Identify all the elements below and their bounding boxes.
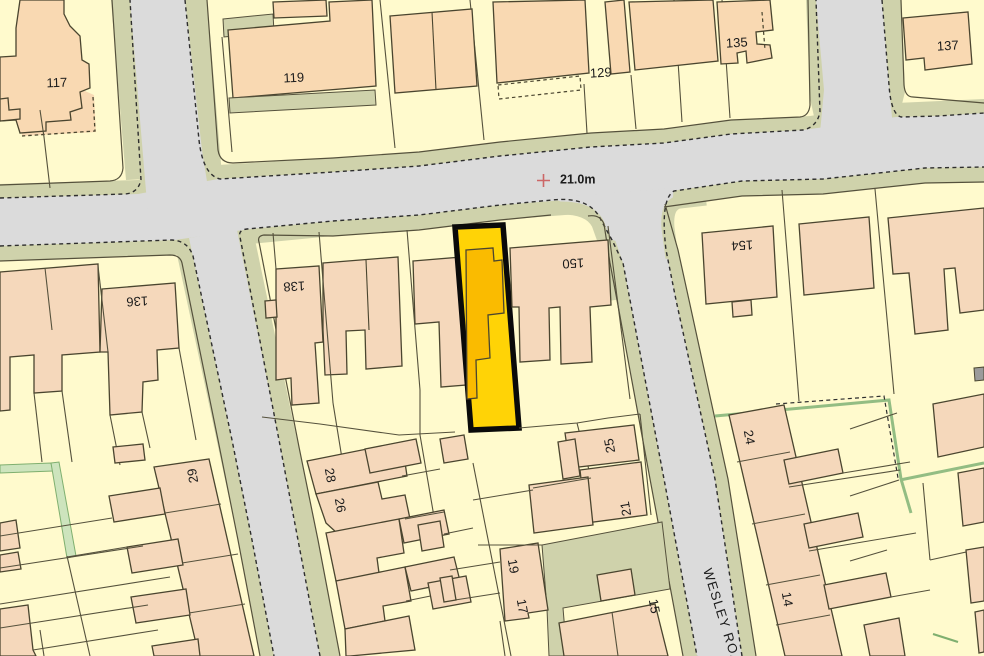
- svg-text:15: 15: [646, 598, 663, 615]
- svg-text:154: 154: [731, 237, 753, 253]
- svg-text:19: 19: [505, 558, 522, 575]
- svg-text:29: 29: [184, 467, 201, 484]
- svg-text:129: 129: [590, 64, 612, 80]
- svg-text:135: 135: [726, 34, 748, 50]
- svg-text:28: 28: [322, 467, 339, 484]
- svg-text:14: 14: [779, 591, 796, 608]
- svg-text:150: 150: [562, 255, 584, 271]
- svg-text:25: 25: [601, 437, 618, 454]
- svg-text:137: 137: [937, 37, 959, 53]
- svg-text:17: 17: [514, 598, 531, 615]
- svg-text:138: 138: [283, 278, 305, 294]
- svg-text:119: 119: [283, 69, 304, 85]
- svg-text:21: 21: [617, 500, 634, 517]
- svg-text:26: 26: [332, 497, 349, 514]
- svg-text:24: 24: [741, 429, 758, 446]
- svg-text:136: 136: [126, 293, 148, 309]
- svg-text:21.0m: 21.0m: [560, 173, 595, 187]
- svg-text:117: 117: [46, 75, 67, 91]
